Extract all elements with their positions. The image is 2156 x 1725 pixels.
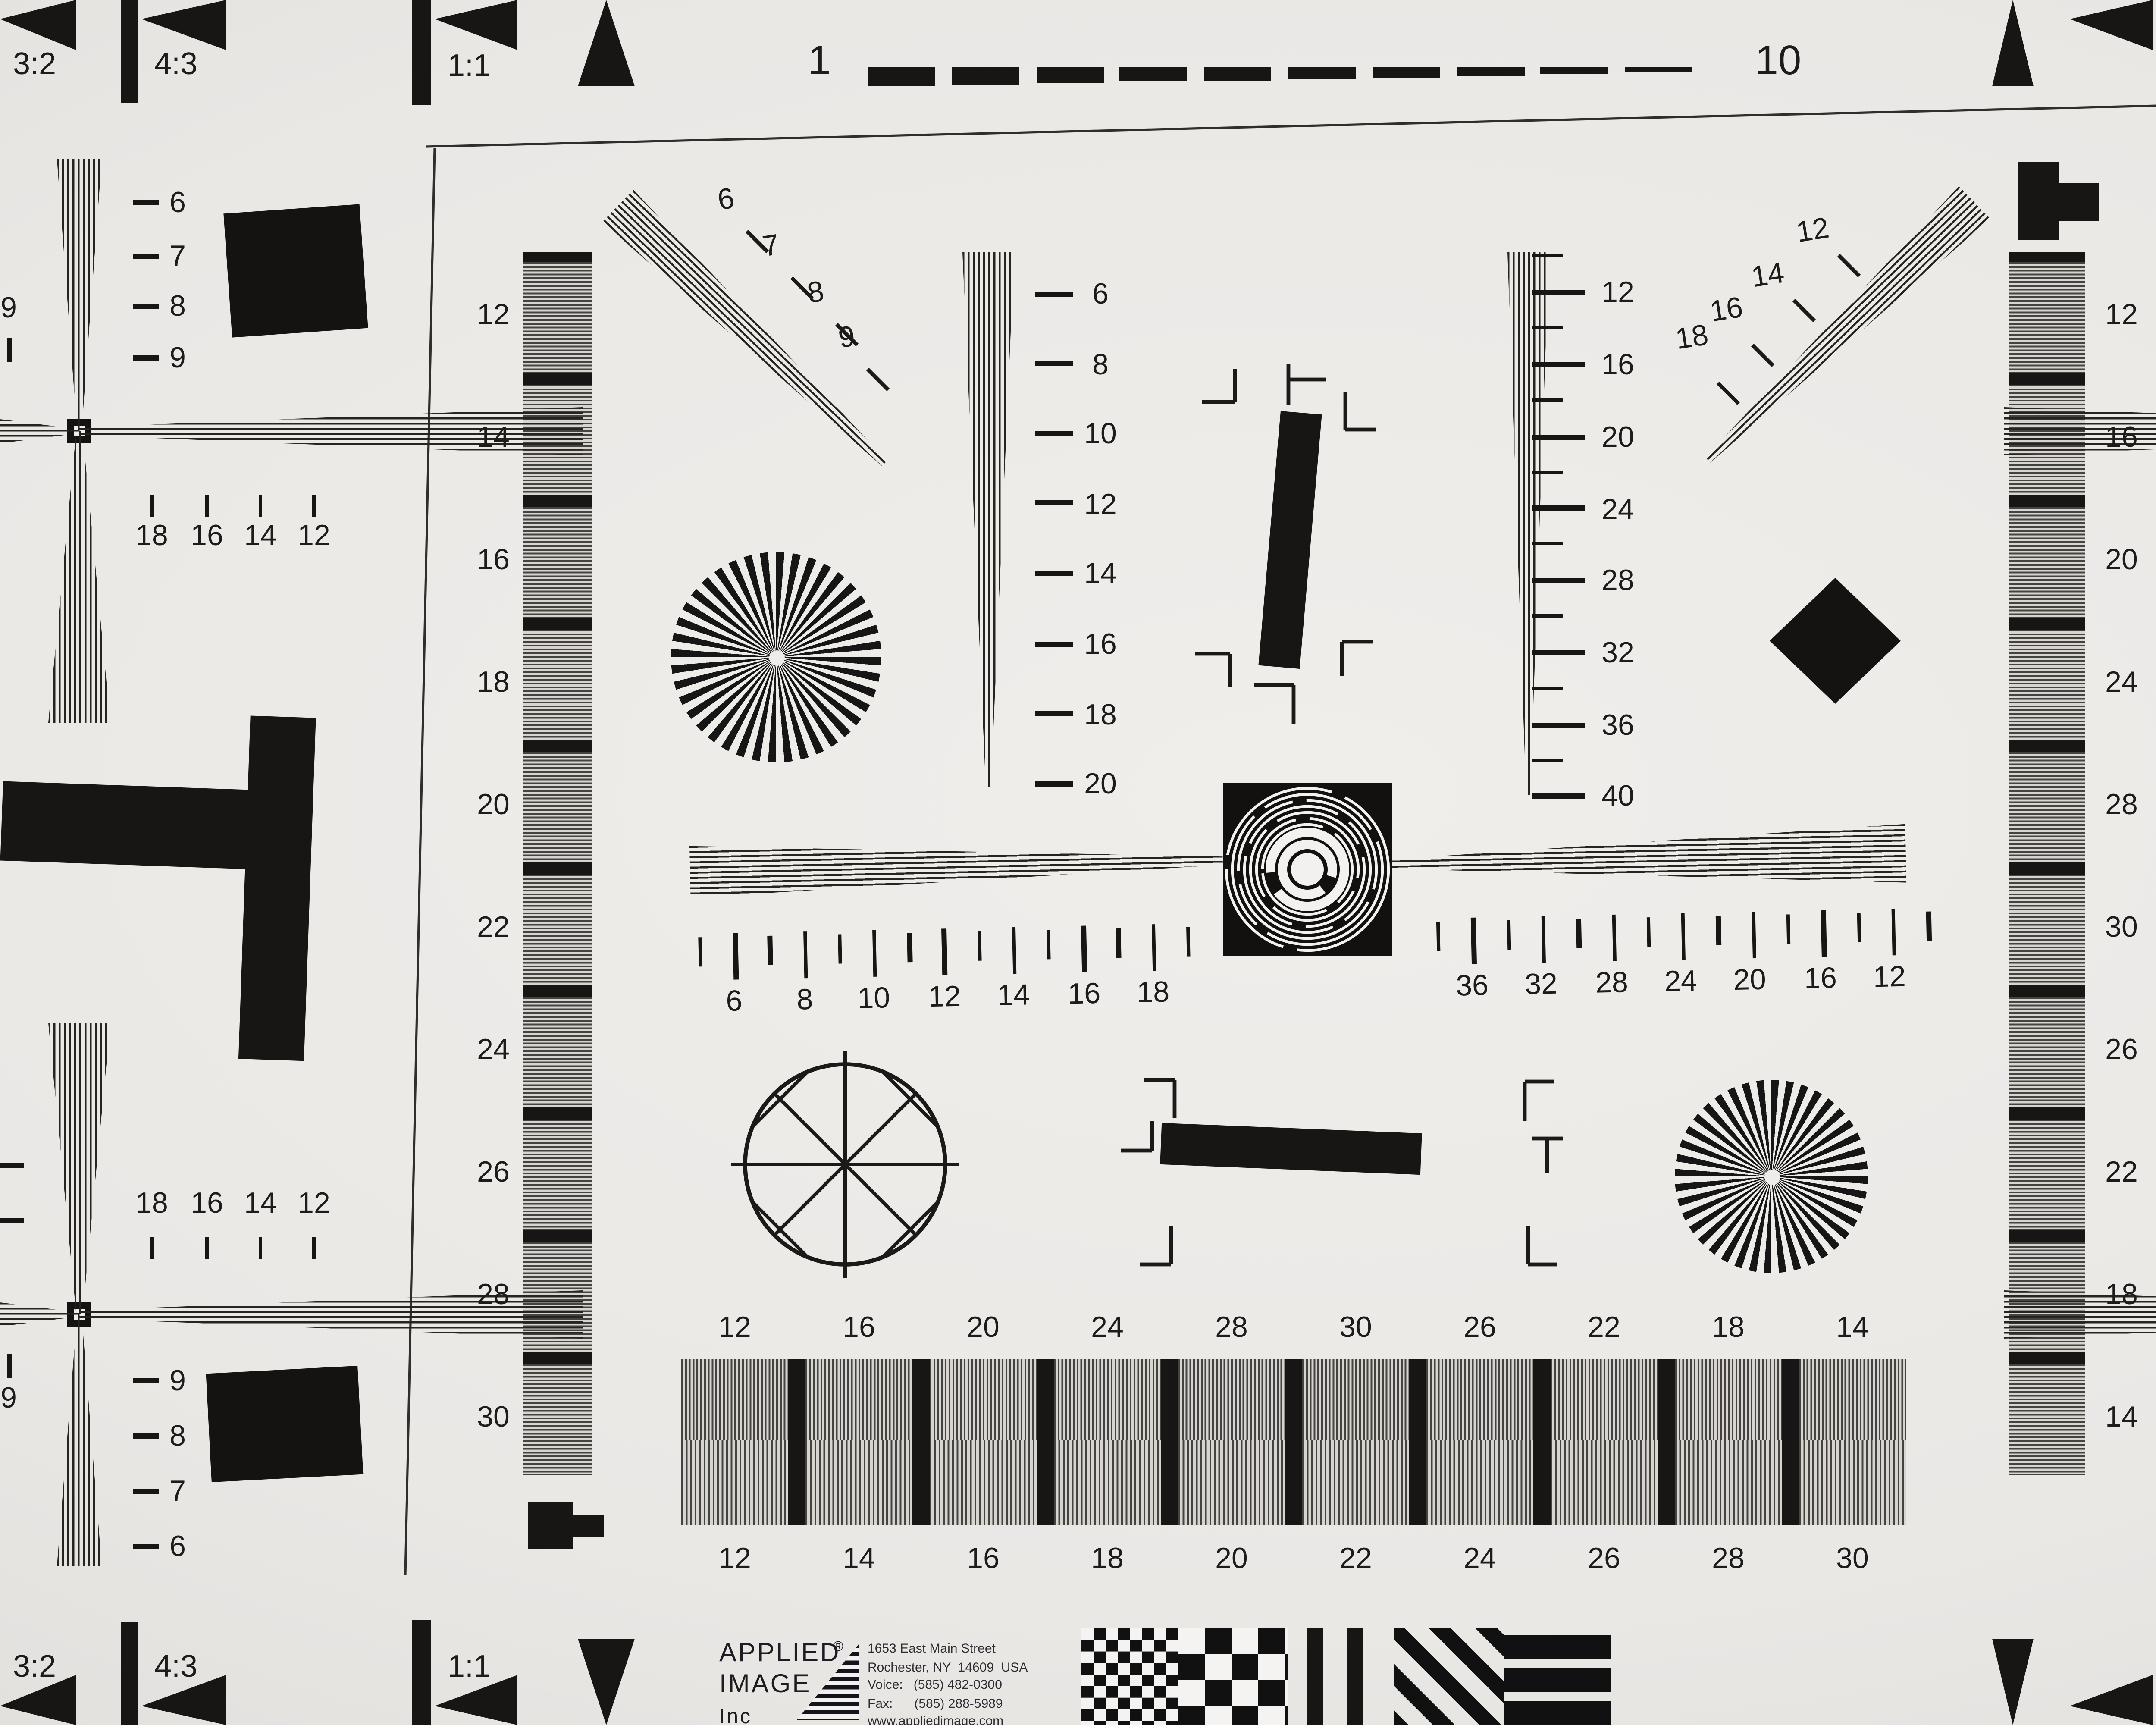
ruler-step-bar: [1541, 67, 1608, 75]
scale-number: 12: [718, 1542, 751, 1577]
scale-number: 6: [169, 186, 186, 221]
tick-mark: [1035, 431, 1073, 436]
scale-number: 18: [135, 1187, 168, 1221]
tick-mark: [1532, 758, 1563, 762]
tick-mark: [1532, 505, 1585, 511]
scale-number: 14: [244, 1187, 277, 1221]
scale-number: 7: [169, 1475, 186, 1509]
tick-mark: [133, 1433, 159, 1438]
ruler-step-bar: [1036, 67, 1103, 83]
scale-number: 28: [477, 1278, 510, 1313]
scale-number: 20: [1215, 1542, 1248, 1577]
tick-mark: [133, 1543, 159, 1548]
tick-mark: [1532, 361, 1585, 367]
scale-number: 22: [477, 911, 510, 945]
scale-number: 16: [191, 519, 223, 554]
scale-number: 3:2: [13, 47, 56, 83]
scale-number: 16: [191, 1187, 223, 1221]
slanted-edge-brackets-lower: [1121, 1080, 1563, 1264]
ruler-step-bar: [1120, 67, 1188, 82]
tick-mark: [1532, 398, 1563, 402]
ruler-step-bar: [868, 67, 935, 87]
test-chart: 68101214161836322824201612 APPLIED ® IMA…: [0, 0, 2156, 1725]
edge-marker-number: 9: [0, 292, 17, 326]
segmented-wheel: [731, 1051, 959, 1278]
tick-mark: [1532, 289, 1585, 294]
tick-mark: [1035, 711, 1073, 716]
scale-number: 30: [2105, 911, 2138, 945]
chart-photo: 68101214161836322824201612 APPLIED ® IMA…: [0, 0, 2156, 1725]
scale-number: 12: [1084, 488, 1117, 522]
scale-number: 14: [843, 1542, 875, 1577]
tick-mark: [150, 1237, 154, 1259]
tick-mark: [1532, 542, 1563, 545]
tick-mark: [7, 338, 12, 362]
frame-crop-lines: [405, 105, 2156, 1575]
scale-number: 1: [808, 38, 830, 86]
scale-number: 12: [298, 1187, 330, 1221]
scale-number: 12: [1601, 276, 1634, 310]
tick-mark: [150, 495, 154, 517]
scale-number: 6: [1092, 278, 1109, 312]
scale-number: 14: [2105, 1401, 2138, 1435]
tick-mark: [1035, 571, 1073, 576]
scale-number: 16: [843, 1311, 875, 1345]
scale-number: 16: [1708, 291, 1745, 330]
tick-mark: [1532, 793, 1585, 798]
scale-number: 18: [135, 519, 168, 554]
scale-number: 20: [1084, 768, 1117, 803]
scale-number: 16: [2105, 421, 2138, 455]
tick-mark: [7, 1354, 12, 1378]
ruler-step-bar: [1204, 67, 1272, 80]
tick-mark: [133, 199, 159, 204]
scale-number: 9: [169, 342, 186, 376]
scale-number: 4:3: [154, 1649, 197, 1685]
tick-mark: [1035, 361, 1073, 366]
tick-mark: [1035, 291, 1073, 296]
tick-mark: [1532, 326, 1563, 329]
scale-number: 26: [477, 1156, 510, 1190]
tick-mark: [133, 303, 159, 308]
tick-mark: [0, 1163, 24, 1168]
scale-number: 28: [1215, 1311, 1248, 1345]
scale-number: 7: [169, 240, 186, 274]
tick-mark: [1532, 434, 1585, 439]
tick-mark: [1532, 470, 1563, 474]
scale-number: 14: [1084, 558, 1117, 593]
scale-number: 16: [477, 543, 510, 578]
tick-mark: [312, 495, 316, 517]
scale-number: 28: [2105, 788, 2138, 823]
ruler-step-bar: [1457, 67, 1524, 76]
scale-number: 30: [477, 1401, 510, 1435]
scale-number: 32: [1601, 637, 1634, 671]
tick-mark: [133, 354, 159, 360]
tick-mark: [205, 1237, 209, 1259]
tick-mark: [0, 1218, 24, 1223]
scale-number: 20: [1601, 421, 1634, 455]
scale-number: 18: [2105, 1278, 2138, 1313]
edge-marker-number: 9: [0, 1382, 17, 1416]
ruler-step-bar: [1373, 67, 1440, 77]
tick-mark: [1532, 254, 1563, 257]
scale-number: 8: [169, 1420, 186, 1454]
scale-number: 16: [1084, 628, 1117, 662]
scale-number: 9: [169, 1364, 186, 1399]
scale-number: 36: [1601, 709, 1634, 743]
tick-mark: [1532, 722, 1585, 727]
scale-number: 3:2: [13, 1649, 56, 1685]
tick-mark: [133, 253, 159, 258]
scale-number: 18: [477, 666, 510, 700]
scale-number: 22: [2105, 1156, 2138, 1190]
scale-number: 28: [1601, 564, 1634, 599]
tick-mark: [258, 1237, 263, 1259]
ruler-step-bar: [1625, 67, 1692, 73]
scale-number: 12: [2105, 298, 2138, 333]
tick-mark: [1532, 649, 1585, 655]
scale-number: 14: [477, 421, 510, 455]
scale-number: 16: [967, 1542, 1000, 1577]
tick-mark: [312, 1237, 316, 1259]
line-overlay: [0, 0, 2156, 1725]
scale-number: 1:1: [448, 48, 491, 85]
ruler-step-bar: [952, 67, 1019, 85]
scale-number: 4:3: [154, 47, 197, 83]
scale-number: 10: [1084, 418, 1117, 452]
scale-number: 24: [477, 1033, 510, 1068]
scale-number: 26: [2105, 1033, 2138, 1068]
scale-number: 14: [1836, 1311, 1869, 1345]
scale-number: 26: [1463, 1311, 1496, 1345]
scale-number: 30: [1836, 1542, 1869, 1577]
tick-mark: [258, 495, 263, 517]
scale-number: 20: [2105, 543, 2138, 578]
scale-number: 18: [1091, 1542, 1124, 1577]
ruler-step-bar: [1288, 67, 1356, 78]
scale-number: 40: [1601, 780, 1634, 814]
scale-number: 20: [967, 1311, 1000, 1345]
tick-mark: [205, 495, 209, 517]
tick-mark: [133, 1377, 159, 1383]
scale-number: 14: [1749, 257, 1786, 296]
scale-number: 18: [1084, 698, 1117, 732]
tick-mark: [1532, 687, 1563, 690]
scale-number: 22: [1339, 1542, 1372, 1577]
tick-mark: [1532, 614, 1563, 618]
scale-number: 20: [477, 788, 510, 823]
scale-number: 24: [1091, 1311, 1124, 1345]
scale-number: 12: [1794, 212, 1831, 251]
tick-mark: [1035, 641, 1073, 646]
scale-number: 28: [1712, 1542, 1745, 1577]
tick-mark: [1035, 781, 1073, 786]
scale-number: 18: [1673, 319, 1711, 358]
scale-number: 24: [1601, 492, 1634, 527]
scale-number: 10: [1755, 38, 1802, 86]
tick-mark: [1035, 501, 1073, 506]
scale-number: 1:1: [448, 1649, 491, 1685]
tick-mark: [133, 1488, 159, 1493]
scale-number: 8: [1092, 348, 1109, 382]
scale-number: 12: [298, 519, 330, 554]
scale-number: 26: [1588, 1542, 1620, 1577]
slanted-edge-brackets-upper: [1195, 364, 1376, 724]
scale-number: 22: [1588, 1311, 1620, 1345]
scale-number: 8: [169, 290, 186, 324]
scale-number: 16: [1601, 348, 1634, 383]
tick-mark: [1532, 577, 1585, 582]
scale-number: 14: [244, 519, 277, 554]
scale-number: 12: [477, 298, 510, 333]
scale-number: 24: [1463, 1542, 1496, 1577]
scale-number: 12: [718, 1311, 751, 1345]
scale-number: 30: [1339, 1311, 1372, 1345]
scale-number: 18: [1712, 1311, 1745, 1345]
scale-number: 24: [2105, 666, 2138, 700]
scale-number: 6: [169, 1530, 186, 1565]
